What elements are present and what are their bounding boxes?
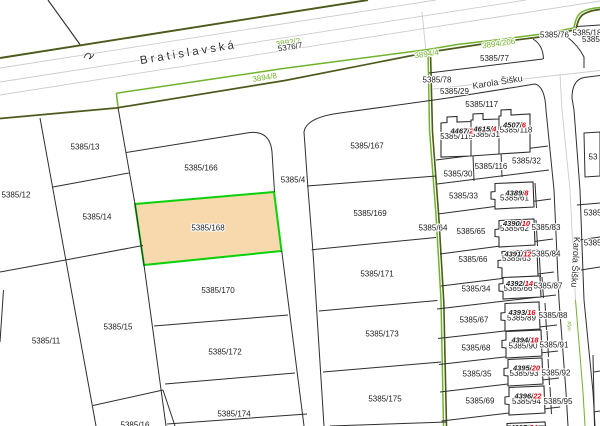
svg-text:5385/171: 5385/171 [360,270,394,279]
svg-text:5385/35: 5385/35 [463,370,492,379]
svg-text:5385/76: 5385/76 [540,31,569,40]
svg-text:5385/67: 5385/67 [460,316,489,325]
svg-text:5385/175: 5385/175 [368,395,402,404]
svg-text:5385/64: 5385/64 [419,224,448,233]
svg-text:4615/4: 4615/4 [473,125,498,134]
svg-text:5385/167: 5385/167 [350,142,384,151]
svg-text:53: 53 [589,153,598,162]
svg-text:4389/8: 4389/8 [505,189,530,198]
svg-text:5385/92: 5385/92 [542,369,571,378]
svg-text:5385/65: 5385/65 [457,227,486,236]
svg-text:4395/20: 4395/20 [512,364,541,373]
svg-text:4391/12: 4391/12 [503,250,532,259]
svg-text:5385/29: 5385/29 [440,87,469,96]
svg-text:5385/117: 5385/117 [465,100,498,109]
svg-text:5385/15: 5385/15 [104,323,133,332]
svg-text:5385/34: 5385/34 [462,285,491,294]
svg-text:5385/116: 5385/116 [475,162,508,171]
svg-text:5385/33: 5385/33 [449,192,478,201]
svg-text:5385/172: 5385/172 [208,348,242,357]
svg-text:5385/166: 5385/166 [184,164,218,173]
svg-text:5385/30: 5385/30 [444,170,473,179]
svg-text:4394/18: 4394/18 [510,336,539,345]
svg-text:5385/32: 5385/32 [512,157,541,166]
svg-text:5385/4: 5385/4 [281,176,306,185]
svg-text:4390/10: 4390/10 [502,219,531,228]
svg-text:5385/84: 5385/84 [532,250,561,259]
svg-text:5385/88: 5385/88 [539,311,568,320]
svg-text:4393/16: 4393/16 [507,308,536,317]
svg-text:5385/78: 5385/78 [423,76,452,85]
svg-text:5385/169: 5385/169 [353,209,387,218]
svg-text:5385/9: 5385/9 [584,239,600,248]
svg-text:5385/173: 5385/173 [365,330,399,339]
svg-text:5385/16: 5385/16 [121,421,150,426]
svg-text:5385/13: 5385/13 [71,143,100,152]
svg-text:5385/95: 5385/95 [544,397,573,406]
svg-text:5385/168: 5385/168 [191,224,225,233]
svg-text:4507/6: 4507/6 [502,121,527,130]
svg-text:5385/68: 5385/68 [462,344,491,353]
svg-text:plyn: plyn [566,321,573,331]
svg-text:5385/77: 5385/77 [480,54,509,63]
svg-text:5385/12: 5385/12 [2,191,31,200]
svg-text:5385/91: 5385/91 [540,341,569,350]
svg-text:5385/174: 5385/174 [217,410,251,419]
svg-text:5385/9: 5385/9 [584,209,600,218]
svg-text:5385/87: 5385/87 [534,282,563,291]
svg-text:5385/69: 5385/69 [466,397,495,406]
svg-text:5385/11: 5385/11 [32,337,61,346]
svg-text:4467/2: 4467/2 [450,127,475,136]
svg-text:5385/66: 5385/66 [459,255,488,264]
svg-text:4396/22: 4396/22 [513,392,542,401]
svg-text:5385/: 5385/ [582,35,600,44]
svg-text:5385/170: 5385/170 [201,286,235,295]
svg-text:5385/14: 5385/14 [83,213,112,222]
svg-text:5385/83: 5385/83 [532,223,561,232]
svg-text:4392/14: 4392/14 [505,279,534,288]
